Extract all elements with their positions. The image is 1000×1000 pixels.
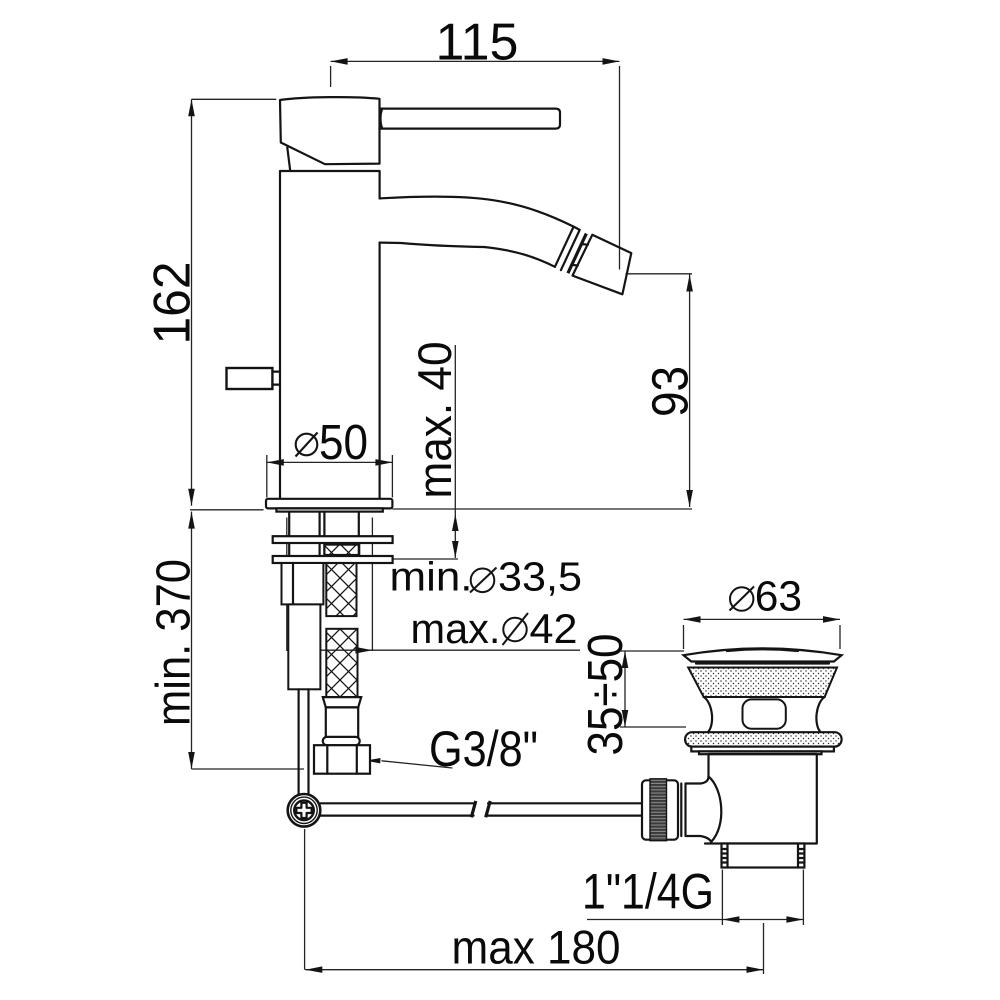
svg-text:162: 162 [144,262,202,345]
svg-text:G3/8": G3/8" [429,720,538,777]
svg-text:63: 63 [755,574,802,621]
svg-text:max 180: max 180 [452,921,621,974]
svg-text:115: 115 [436,14,519,72]
svg-text:max.: max. [411,605,501,652]
svg-text:min. 370: min. 370 [148,559,201,726]
svg-text:33,5: 33,5 [498,554,582,600]
svg-text:min.: min. [390,554,473,600]
svg-text:1"1/4G: 1"1/4G [582,863,714,920]
svg-text:max. 40: max. 40 [408,342,461,499]
svg-text:42: 42 [530,605,578,652]
